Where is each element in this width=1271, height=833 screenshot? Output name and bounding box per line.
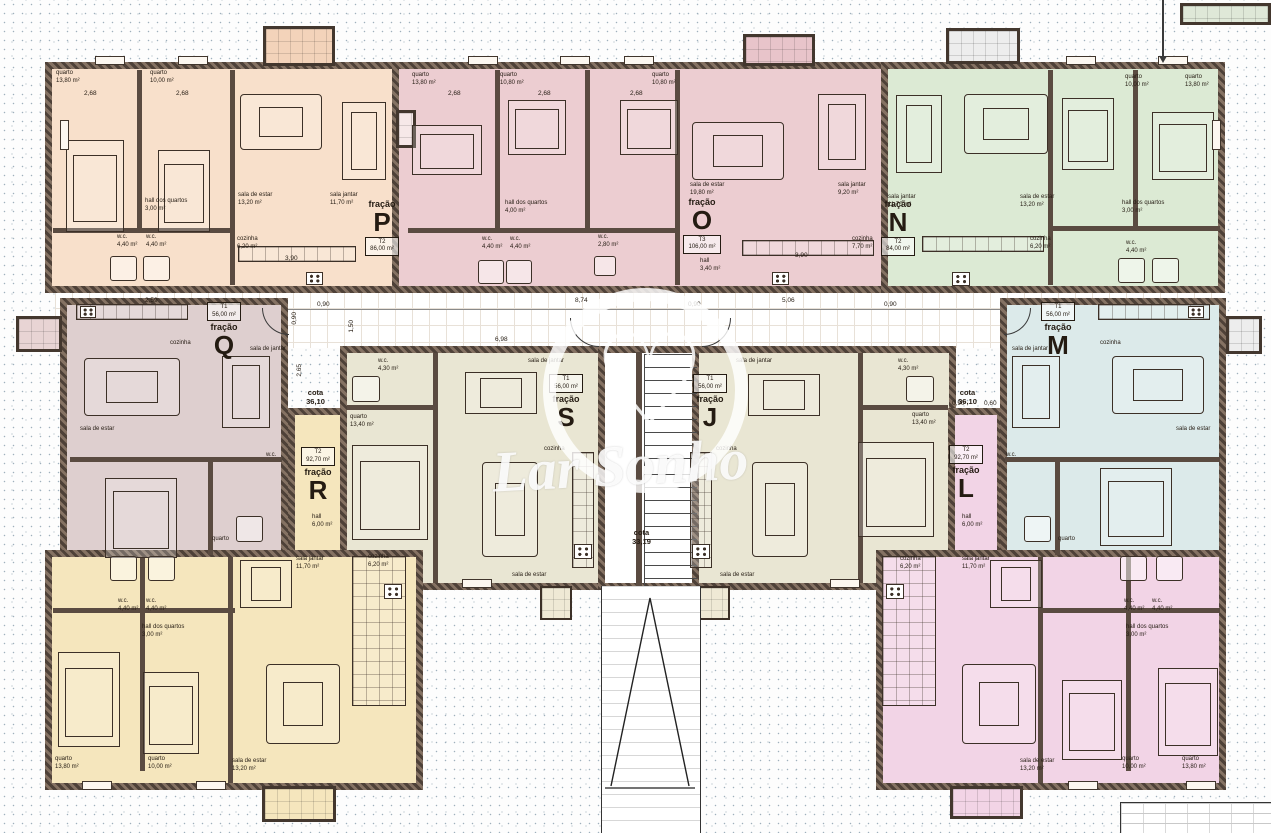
shower-symbol — [1156, 556, 1183, 581]
room-label: cozinha6,20 m² — [237, 236, 258, 252]
interior-wall — [1048, 70, 1053, 285]
room-label: sala de estar19,80 m² — [690, 182, 724, 198]
room-label: cozinha6,20 m² — [900, 556, 921, 572]
sofa-symbol — [266, 664, 340, 744]
bed-symbol — [352, 445, 428, 540]
room-label: hall dos quartos4,00 m² — [505, 200, 547, 216]
room-label: w.c.4,40 m² — [118, 598, 138, 614]
shower-symbol — [478, 260, 504, 284]
room-label: quarto13,40 m² — [912, 412, 936, 428]
room-label: quarto10,80 m² — [652, 72, 676, 88]
sofa-symbol — [1112, 356, 1204, 414]
dining-table-symbol — [896, 95, 942, 173]
dimension-label: 2,68 — [630, 90, 643, 97]
retaining-wall — [1120, 802, 1271, 833]
fracao-block-M: T156,00 m² fraçãoM — [1030, 300, 1086, 358]
room-label: w.c.4,40 m² — [510, 236, 530, 252]
room-label: w.c. — [1006, 452, 1016, 460]
stove-symbol — [952, 272, 970, 286]
shower-symbol — [110, 256, 137, 281]
room-label: sala jantar11,70 m² — [296, 556, 324, 572]
shower-symbol — [594, 256, 616, 276]
fracao-block-J: T156,00 m² fraçãoJ — [682, 372, 738, 430]
kitchen-counter-symbol — [882, 556, 936, 706]
dimension-label: 0,90 — [688, 301, 701, 308]
shower-symbol — [110, 556, 137, 581]
balcony-top-P — [263, 26, 335, 66]
room-label: hall dos quartos3,00 m² — [142, 624, 184, 640]
room-label: sala de estar — [80, 426, 114, 434]
stove-symbol — [886, 584, 904, 599]
bed-symbol — [58, 652, 120, 747]
sofa-symbol — [752, 462, 808, 557]
dimension-label: 3,90 — [795, 252, 808, 259]
room-label: w.c.4,40 m² — [1126, 240, 1146, 256]
fracao-block-O: fraçãoO T3106,00 m² — [672, 198, 732, 256]
floor-plan-canvas: quarto13,80 m² quarto10,00 m² sala de es… — [0, 0, 1271, 833]
dimension-label: 3,90 — [285, 255, 298, 262]
dimension-label: 8,74 — [575, 297, 588, 304]
fracao-block-S: T156,00 m² fraçãoS — [538, 372, 594, 430]
balcony-left-Q — [16, 316, 62, 352]
room-label: quarto10,80 m² — [500, 72, 524, 88]
balcony-right-M — [1226, 316, 1262, 354]
fracao-block-Q: T156,00 m² fraçãoQ — [196, 300, 252, 358]
room-label: w.c.4,30 m² — [378, 358, 398, 374]
stove-symbol — [692, 544, 710, 559]
window-symbol — [830, 579, 860, 588]
dimension-label: 0,90 — [291, 312, 298, 325]
dimension-label: 6,98 — [495, 336, 508, 343]
leader-line — [1162, 0, 1164, 58]
interior-wall — [585, 70, 590, 233]
stove-symbol — [306, 272, 323, 285]
interior-wall — [140, 557, 145, 610]
shower-symbol — [352, 376, 380, 402]
dining-table-symbol — [465, 372, 537, 414]
shower-symbol — [906, 376, 934, 402]
interior-wall — [1005, 457, 1220, 462]
leader-arrow — [1159, 56, 1167, 63]
window-symbol — [1068, 781, 1098, 790]
room-label: quarto13,80 m² — [55, 756, 79, 772]
dimension-label: 1,50 — [348, 320, 355, 333]
dimension-label: 0,60 — [984, 400, 997, 407]
interior-wall — [70, 457, 282, 462]
dimension-label: 2,68 — [538, 90, 551, 97]
dining-table-symbol — [342, 102, 386, 180]
room-label: sala de estar13,20 m² — [1020, 758, 1054, 774]
room-label: quarto13,40 m² — [350, 414, 374, 430]
sofa-symbol — [962, 664, 1036, 744]
window-symbol — [560, 56, 590, 65]
room-label: quarto10,00 m² — [1125, 74, 1149, 90]
room-label: hall dos quartos3,00 m² — [1126, 624, 1168, 640]
room-label: quarto13,80 m² — [412, 72, 436, 88]
shower-symbol — [1024, 516, 1051, 542]
shower-symbol — [1120, 556, 1147, 581]
room-label: cozinha — [170, 340, 191, 348]
bed-symbol — [508, 100, 566, 155]
fracao-block-R: T292,70 m² fraçãoR — [292, 445, 344, 503]
bed-symbol — [1158, 668, 1218, 756]
window-symbol — [95, 56, 125, 65]
room-label: hall dos quartos3,00 m² — [145, 198, 187, 214]
balcony-bottom-R — [262, 786, 336, 822]
dimension-label: 2,59 — [145, 297, 158, 304]
room-label: w.c.2,80 m² — [598, 234, 618, 250]
shower-symbol — [143, 256, 170, 281]
dimension-label: 2,68 — [176, 90, 189, 97]
bed-symbol — [1152, 112, 1214, 180]
fracao-block-L: T292,70 m² fraçãoL — [940, 443, 992, 501]
room-label: cozinha — [1100, 340, 1121, 348]
room-label: cozinha6,20 m² — [1030, 236, 1051, 252]
interior-wall — [495, 70, 500, 233]
interior-wall — [408, 228, 680, 233]
sofa-symbol — [964, 94, 1048, 154]
sofa-symbol — [240, 94, 322, 150]
window-symbol — [60, 120, 69, 150]
window-symbol — [1186, 781, 1216, 790]
dimension-label: 5,06 — [782, 297, 795, 304]
room-label: quarto10,00 m² — [148, 756, 172, 772]
kitchen-counter-symbol — [352, 556, 406, 706]
entry-step-S — [540, 586, 572, 620]
room-label: w.c.4,40 m² — [482, 236, 502, 252]
room-label: sala de jantar — [250, 346, 286, 354]
window-symbol — [624, 56, 654, 65]
room-label: w.c.4,40 m² — [146, 598, 166, 614]
bed-symbol — [143, 672, 199, 754]
ramp-arrow — [601, 586, 699, 833]
room-label: sala de estar13,20 m² — [232, 758, 266, 774]
window-symbol — [178, 56, 208, 65]
room-label: cozinha6,20 m² — [368, 554, 389, 570]
room-label: quarto — [1058, 536, 1075, 544]
window-symbol — [468, 56, 498, 65]
room-label: quarto13,80 m² — [1182, 756, 1206, 772]
interior-wall — [347, 405, 435, 410]
interior-wall — [433, 353, 438, 583]
shower-symbol — [236, 516, 263, 542]
interior-wall — [860, 405, 948, 410]
room-label: w.c.4,40 m² — [117, 234, 137, 250]
interior-wall — [1048, 226, 1220, 231]
room-label: sala de jantar — [736, 358, 772, 366]
balcony-top-N — [946, 28, 1020, 64]
room-label: quarto10,00 m² — [150, 70, 174, 86]
kitchen-counter-symbol — [922, 236, 1044, 252]
interior-wall — [230, 70, 235, 285]
dimension-label: 2,65 — [296, 364, 303, 377]
dimension-label: 0,90 — [317, 301, 330, 308]
bed-symbol — [412, 125, 482, 175]
room-label: cozinha — [544, 446, 565, 454]
window-symbol — [462, 579, 492, 588]
cota-label: cota33,19 — [614, 528, 669, 547]
room-label: quarto — [212, 536, 229, 544]
interior-wall — [137, 70, 142, 233]
shower-symbol — [1118, 258, 1145, 283]
dining-table-symbol — [222, 356, 270, 428]
bed-symbol — [620, 100, 678, 155]
bed-symbol — [858, 442, 934, 537]
room-label: w.c. — [266, 452, 276, 460]
room-label: sala jantar11,70 m² — [962, 556, 990, 572]
dimension-label: 0,90 — [884, 301, 897, 308]
room-label: w.c.4,30 m² — [898, 358, 918, 374]
balcony-top-O — [743, 34, 815, 66]
room-label: sala de estar — [512, 572, 546, 580]
cota-label: cota36,10 — [288, 388, 343, 407]
room-label: quarto13,80 m² — [1185, 74, 1209, 90]
dining-table-symbol — [1012, 356, 1060, 428]
dining-table-symbol — [990, 560, 1042, 608]
shower-symbol — [506, 260, 532, 284]
fracao-block-P: fraçãoP T286,00 m² — [352, 200, 412, 258]
bed-symbol — [105, 478, 177, 558]
bed-symbol — [1062, 98, 1114, 170]
bed-symbol — [1062, 680, 1122, 760]
bed-symbol — [158, 150, 210, 232]
sofa-symbol — [482, 462, 538, 557]
balcony-bottom-L — [950, 786, 1023, 819]
stove-symbol — [574, 544, 592, 559]
shower-symbol — [1152, 258, 1179, 283]
room-label: quarto10,00 m² — [1122, 756, 1146, 772]
stove-symbol — [772, 272, 789, 285]
room-label: sala jantar9,20 m² — [838, 182, 866, 198]
room-label: sala de estar — [1176, 426, 1210, 434]
stair-core-wall — [636, 352, 642, 586]
dining-table-symbol — [818, 94, 866, 170]
fracao-block-N: fraçãoN T284,00 m² — [868, 200, 928, 258]
entry-step-J — [698, 586, 730, 620]
room-label: sala de estar13,20 m² — [238, 192, 272, 208]
bed-symbol — [66, 140, 124, 232]
window-symbol — [1066, 56, 1096, 65]
dimension-label: 2,68 — [84, 90, 97, 97]
room-label: w.c.4,40 m² — [1124, 598, 1144, 614]
dimension-label: 0,90 — [952, 400, 965, 407]
dining-table-symbol — [748, 374, 820, 416]
bed-symbol — [1100, 468, 1172, 546]
stove-symbol — [80, 306, 96, 318]
room-label: quarto13,80 m² — [56, 70, 80, 86]
dimension-label: 2,68 — [448, 90, 461, 97]
sofa-symbol — [692, 122, 784, 180]
dining-table-symbol — [240, 560, 292, 608]
stove-symbol — [384, 584, 402, 599]
window-symbol — [196, 781, 226, 790]
room-label: w.c.4,40 m² — [1152, 598, 1172, 614]
room-label: hall6,00 m² — [962, 514, 982, 530]
room-label: hall6,00 m² — [312, 514, 332, 530]
shower-symbol — [148, 556, 175, 581]
room-label: w.c.4,40 m² — [146, 234, 166, 250]
interior-wall — [228, 557, 233, 783]
window-symbol — [82, 781, 112, 790]
room-label: hall3,40 m² — [700, 258, 720, 274]
room-label: sala de estar13,20 m² — [1020, 194, 1054, 210]
sofa-symbol — [84, 358, 180, 416]
room-label: sala de estar — [720, 572, 754, 580]
window-symbol — [1212, 120, 1221, 150]
room-label: cozinha — [716, 446, 737, 454]
room-label: sala de jantar — [528, 358, 564, 366]
stove-symbol — [1188, 306, 1204, 318]
room-label: hall dos quartos3,00 m² — [1122, 200, 1164, 216]
planter-top-right — [1180, 3, 1271, 25]
